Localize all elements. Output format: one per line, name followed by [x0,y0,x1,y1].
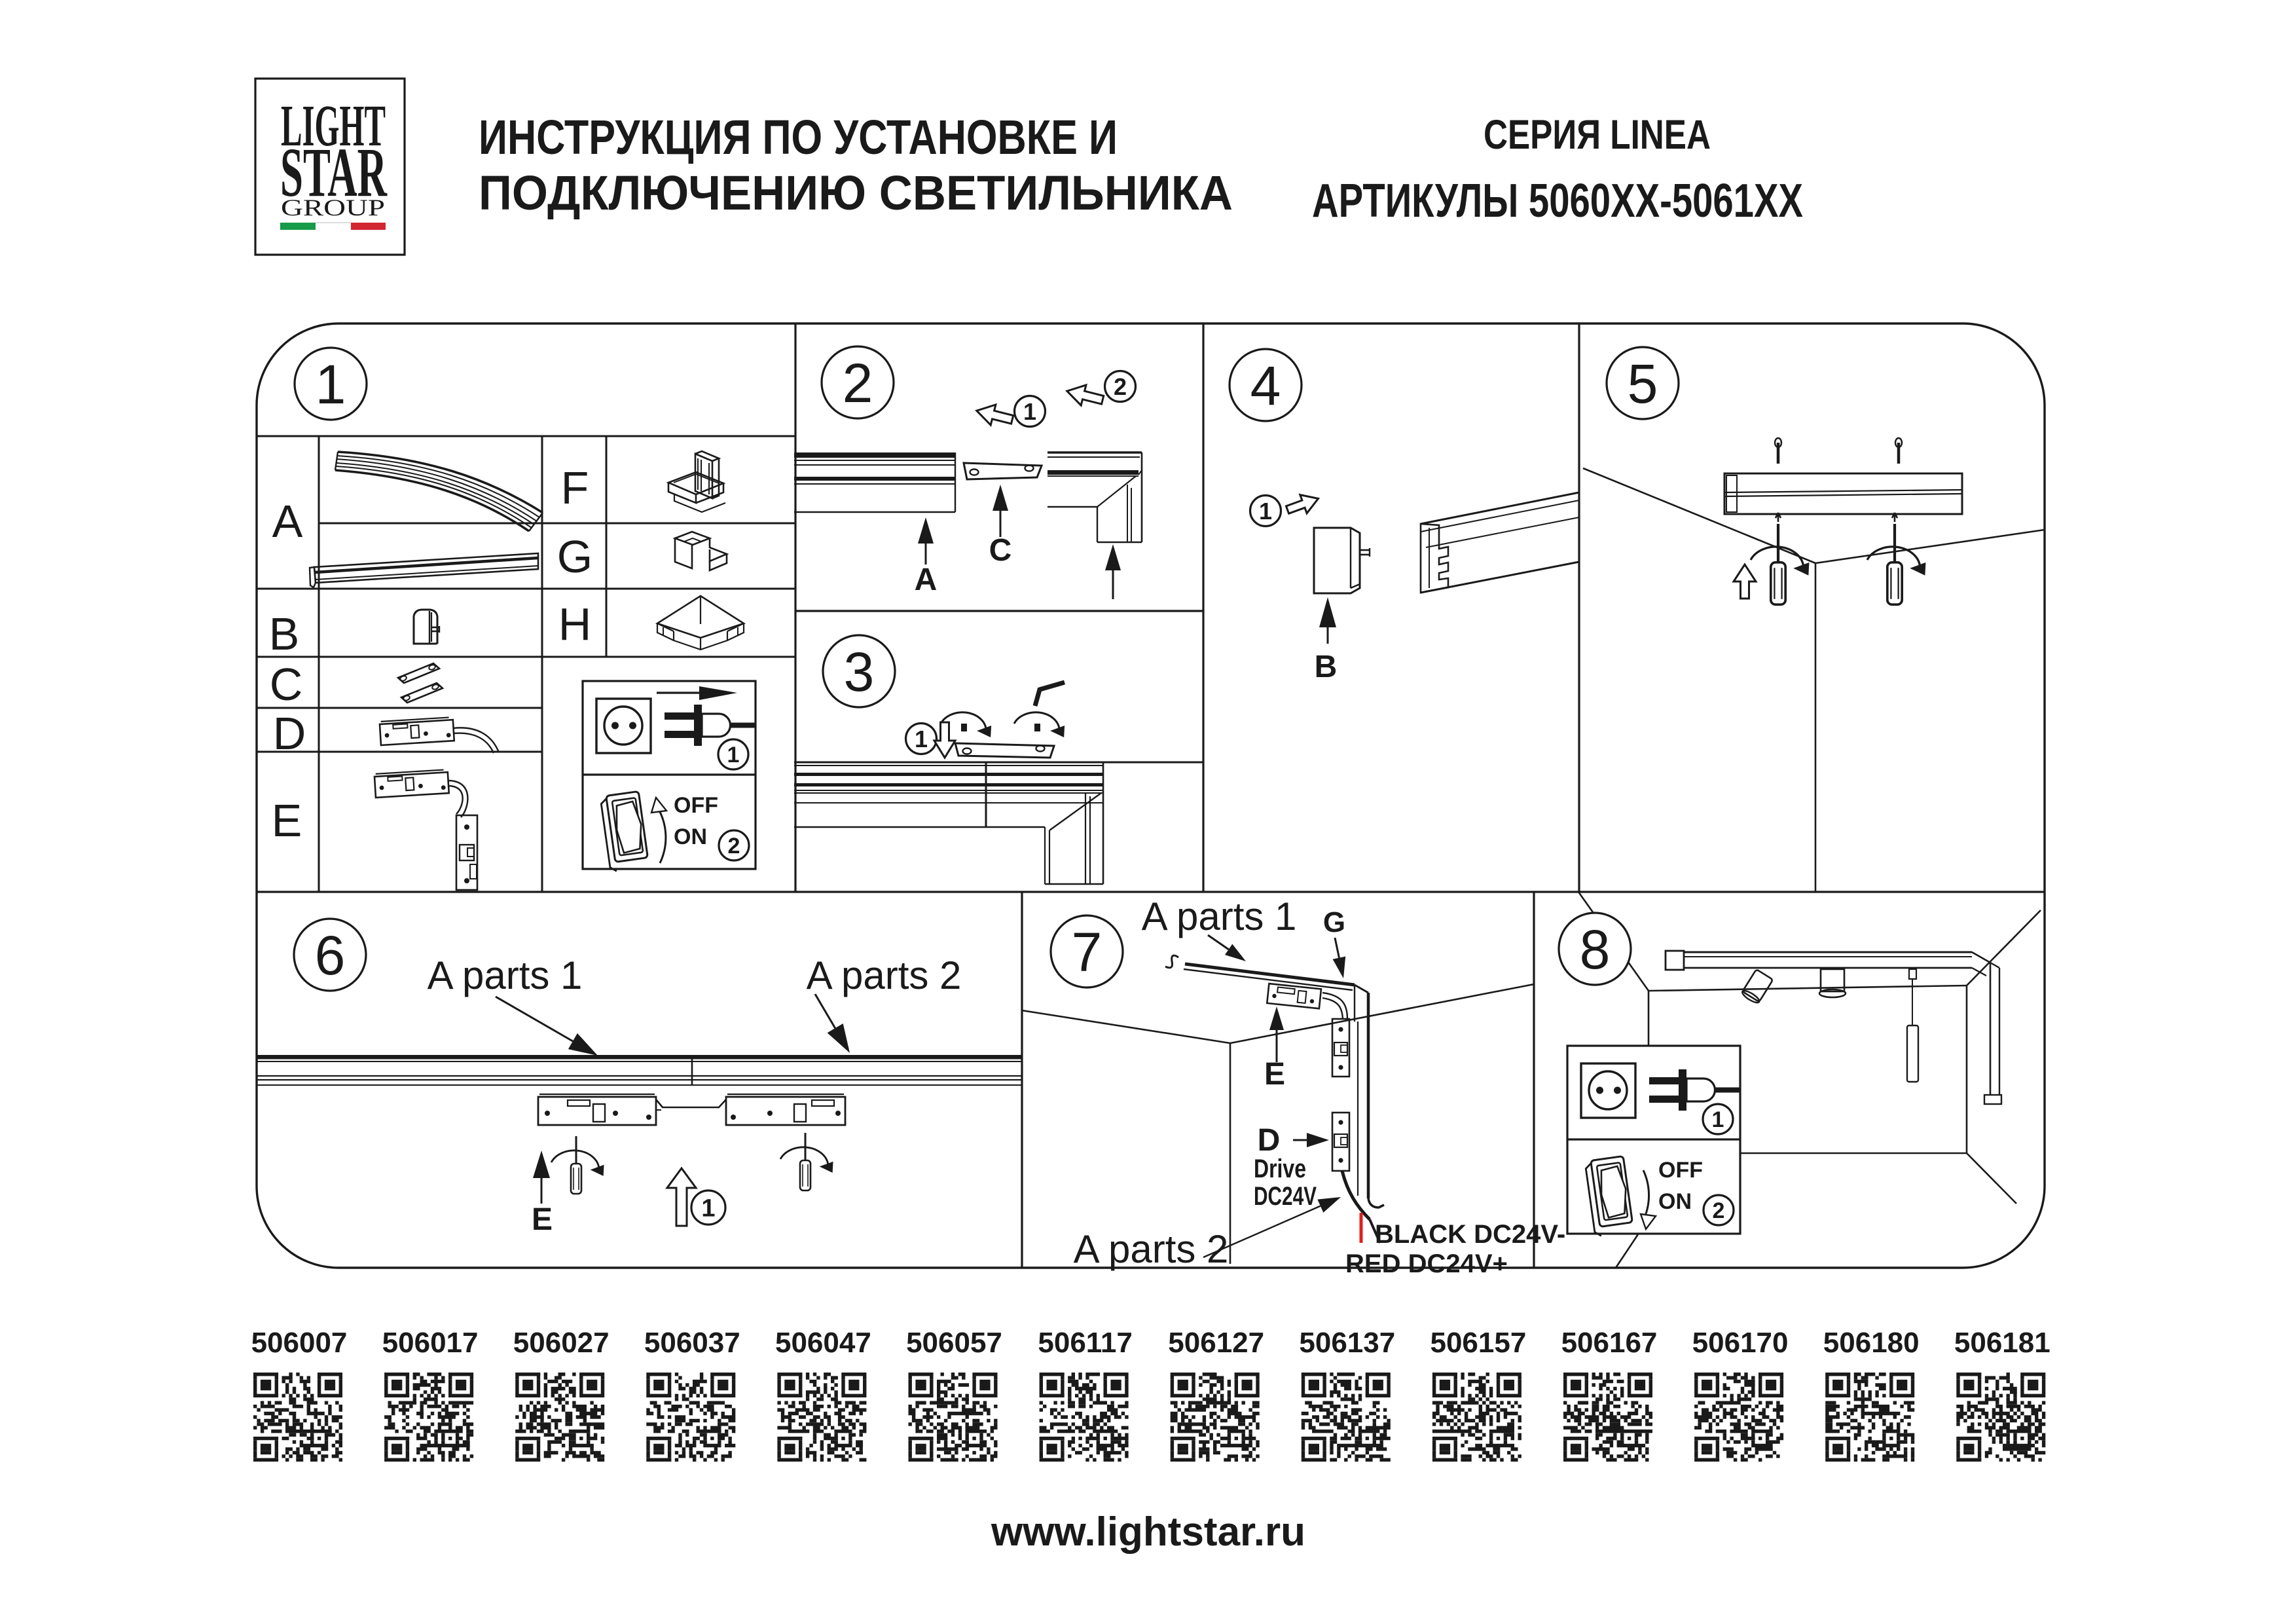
svg-text:G: G [557,531,592,582]
svg-text:OFF: OFF [1658,1158,1703,1183]
svg-text:4: 4 [1250,355,1281,416]
svg-text:506007: 506007 [251,1327,348,1359]
svg-text:D: D [1258,1123,1281,1158]
svg-text:E: E [532,1202,553,1237]
svg-text:A parts 1: A parts 1 [428,953,583,997]
svg-text:1: 1 [915,726,928,752]
svg-text:A parts 2: A parts 2 [807,953,962,997]
svg-text:G: G [1323,906,1345,938]
svg-text:A parts 1: A parts 1 [1142,895,1297,938]
svg-text:6: 6 [315,925,346,986]
svg-text:ПОДКЛЮЧЕНИЮ СВЕТИЛЬНИКА: ПОДКЛЮЧЕНИЮ СВЕТИЛЬНИКА [479,166,1233,220]
svg-text:ИНСТРУКЦИЯ ПО УСТАНОВКЕ И: ИНСТРУКЦИЯ ПО УСТАНОВКЕ И [479,110,1118,164]
svg-text:8: 8 [1580,919,1611,980]
svg-text:506137: 506137 [1299,1327,1395,1359]
svg-text:1: 1 [316,354,346,415]
svg-text:B: B [1315,650,1338,684]
svg-text:BLACK DC24V-: BLACK DC24V- [1375,1220,1565,1249]
svg-text:A parts 2: A parts 2 [1074,1227,1229,1271]
svg-text:506027: 506027 [513,1327,610,1359]
svg-text:2: 2 [843,352,873,414]
svg-text:OFF: OFF [674,793,718,818]
svg-text:506017: 506017 [382,1327,479,1359]
svg-text:506047: 506047 [775,1327,871,1359]
svg-text:1: 1 [727,743,740,767]
svg-text:RED DC24V+: RED DC24V+ [1345,1249,1508,1278]
svg-text:506037: 506037 [644,1327,740,1359]
svg-text:F: F [561,462,589,513]
svg-text:7: 7 [1072,921,1102,983]
svg-text:DC24V: DC24V [1254,1182,1317,1211]
svg-text:506057: 506057 [906,1327,1002,1359]
svg-text:3: 3 [844,641,875,703]
svg-text:1: 1 [1023,398,1036,425]
svg-text:506117: 506117 [1038,1327,1132,1359]
svg-text:506167: 506167 [1561,1327,1658,1359]
svg-text:C: C [270,659,303,710]
svg-text:506180: 506180 [1823,1327,1920,1359]
svg-text:D: D [273,708,306,759]
svg-text:1: 1 [1259,498,1272,525]
svg-text:2: 2 [1713,1198,1725,1223]
svg-text:506157: 506157 [1430,1327,1526,1359]
svg-text:506127: 506127 [1168,1327,1264,1359]
svg-text:1: 1 [1712,1107,1724,1132]
svg-text:2: 2 [728,834,740,858]
svg-text:ON: ON [1658,1189,1692,1214]
svg-text:E: E [1264,1057,1285,1092]
svg-text:1: 1 [701,1195,715,1223]
svg-text:2: 2 [1114,373,1127,400]
svg-text:E: E [272,795,302,846]
svg-text:АРТИКУЛЫ 5060XX-5061XX: АРТИКУЛЫ 5060XX-5061XX [1312,175,1803,227]
svg-text:ON: ON [674,824,707,849]
svg-text:www.lightstar.ru: www.lightstar.ru [991,1509,1305,1555]
svg-text:5: 5 [1628,353,1658,415]
svg-text:B: B [269,608,300,659]
svg-text:C: C [989,533,1012,568]
svg-text:Drive: Drive [1254,1154,1306,1183]
svg-text:506181: 506181 [1954,1327,2050,1359]
svg-text:H: H [558,599,592,650]
svg-text:506170: 506170 [1692,1327,1789,1359]
svg-text:GROUP: GROUP [281,194,385,221]
svg-text:A: A [915,563,938,597]
svg-text:СЕРИЯ LINEA: СЕРИЯ LINEA [1484,112,1711,158]
svg-text:A: A [272,496,303,547]
